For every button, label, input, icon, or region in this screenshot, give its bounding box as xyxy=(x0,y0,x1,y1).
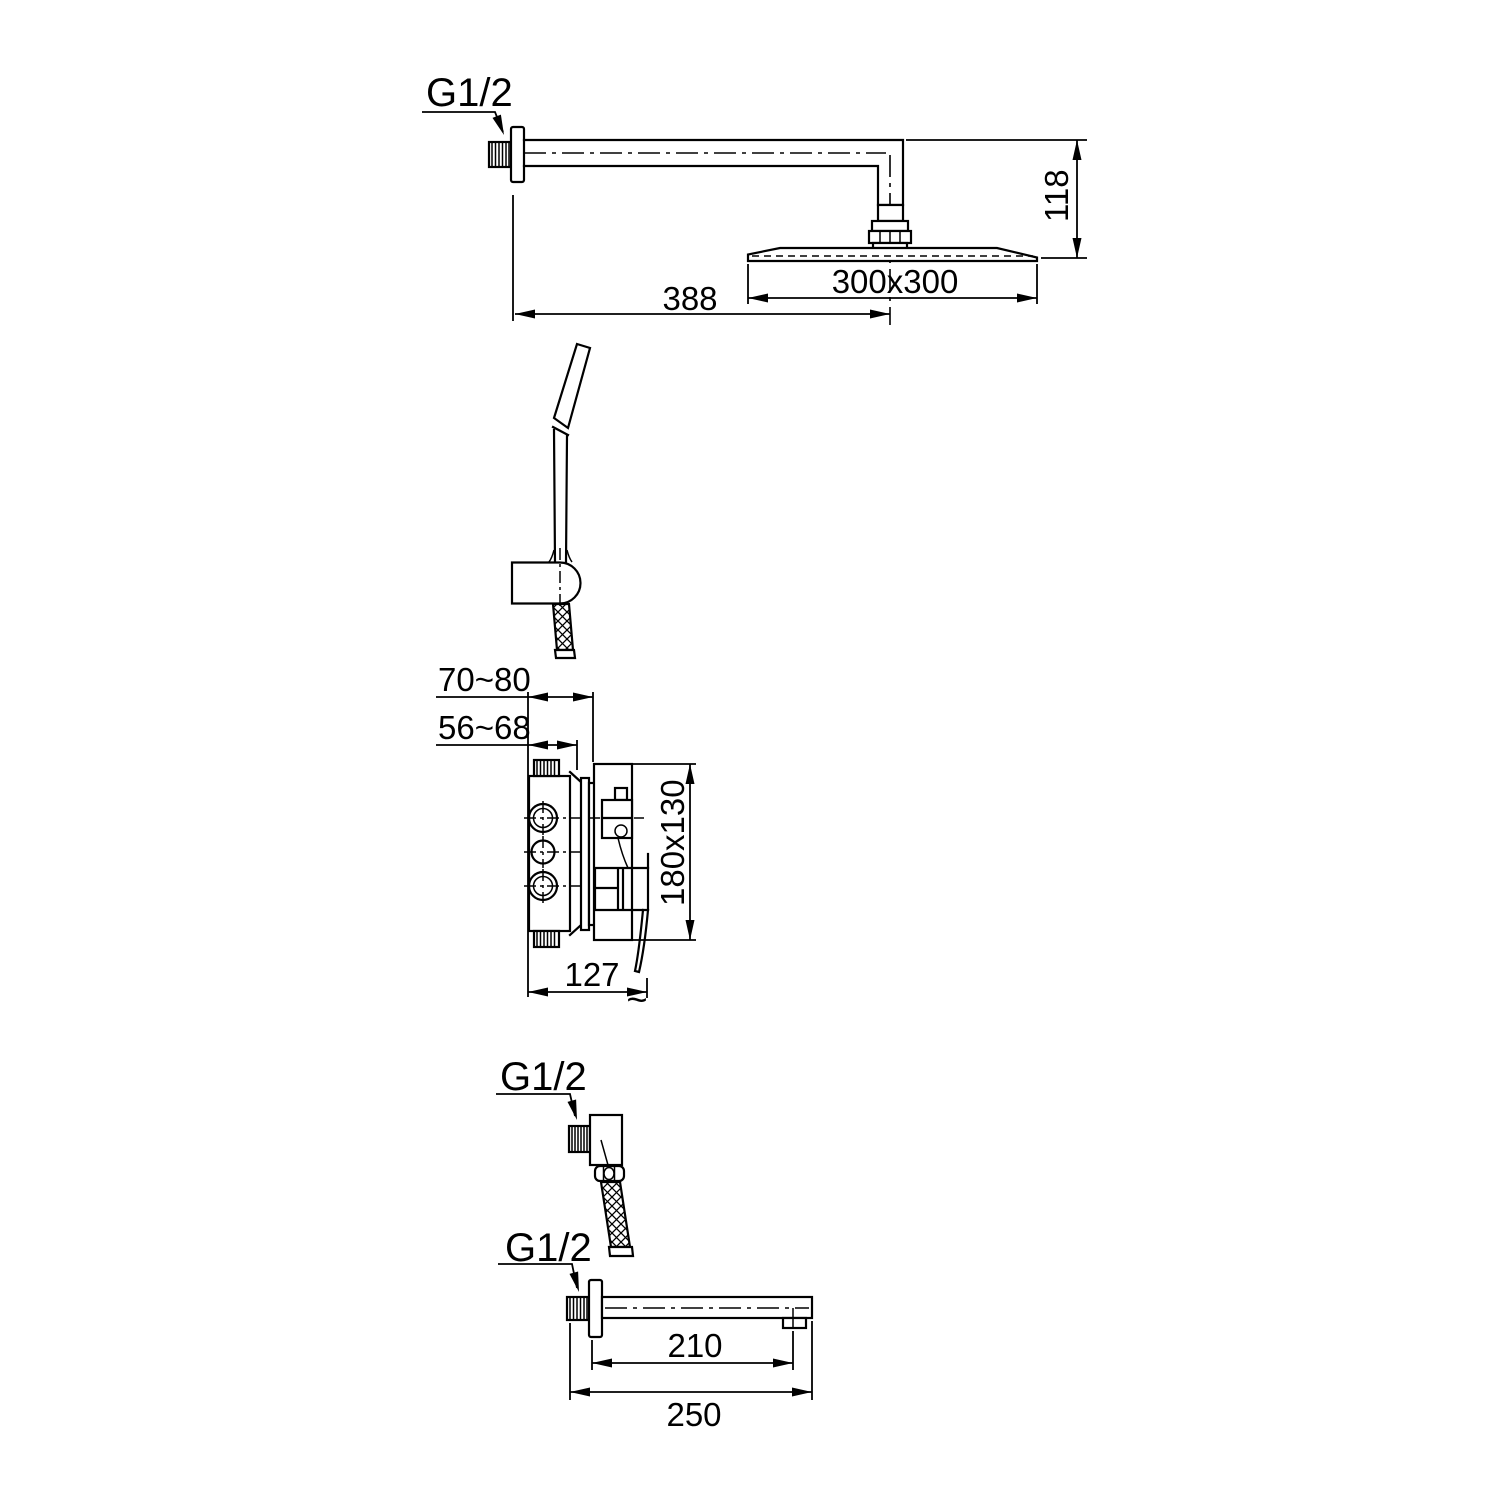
approx-tilde-symbol: ~ xyxy=(626,979,647,1020)
hand-shower-handle xyxy=(554,430,567,562)
arrow-right-icon xyxy=(773,1359,793,1368)
bath-spout-assembly: G1/2 210 250 xyxy=(498,1226,812,1433)
dim-label-118: 118 xyxy=(1038,169,1075,222)
shower-system-dimension-drawing: G1/2 118 300x300 xyxy=(0,0,1500,1500)
mixer-valve-assembly: 70~80 56~68 xyxy=(436,661,696,1020)
rain-shower-thread-label: G1/2 xyxy=(426,71,513,115)
leader-arrow-icon xyxy=(493,115,505,135)
arrow-left-icon xyxy=(528,988,548,997)
arrow-down-icon xyxy=(1073,238,1082,258)
dim-label-250: 250 xyxy=(666,1396,721,1433)
shower-arm xyxy=(524,140,903,205)
dim-label-210: 210 xyxy=(667,1327,722,1364)
arm-wall-flange xyxy=(511,127,524,182)
hand-shower-assembly xyxy=(512,344,590,658)
spout-outlet xyxy=(783,1318,806,1328)
arrow-left-icon xyxy=(528,693,548,702)
hand-shower-holder xyxy=(512,563,581,604)
ball-joint-neck xyxy=(878,205,903,221)
escutcheon-plate-side xyxy=(581,778,589,930)
arrow-left-icon xyxy=(515,310,535,319)
arrow-left-icon xyxy=(592,1359,612,1368)
elbow-hose-end xyxy=(609,1247,633,1256)
arrow-down-icon xyxy=(686,920,695,940)
dim-label-388: 388 xyxy=(662,280,717,317)
handle-lever-tail xyxy=(635,910,648,972)
dim-label-300x300: 300x300 xyxy=(832,263,959,300)
dim-label-70-80: 70~80 xyxy=(438,661,531,698)
diverter-button xyxy=(615,788,627,800)
technical-drawing-canvas: G1/2 118 300x300 xyxy=(0,0,1500,1500)
arrow-right-icon xyxy=(557,741,577,750)
elbow-thread-label: G1/2 xyxy=(500,1055,587,1099)
hand-shower-head xyxy=(554,344,590,428)
rain-shower-leader-line xyxy=(422,112,503,132)
hand-shower-hose xyxy=(553,604,573,650)
hose-end-fitting xyxy=(555,650,575,658)
dim-label-180x130: 180x130 xyxy=(654,779,691,906)
leader-arrow-icon xyxy=(568,1100,578,1121)
ball-joint-collar xyxy=(872,221,908,231)
elbow-hose xyxy=(601,1182,630,1247)
arrow-left-icon xyxy=(528,741,548,750)
arrow-right-icon xyxy=(1017,294,1037,303)
arrow-left-icon xyxy=(748,294,768,303)
rain-shower-assembly: G1/2 118 300x300 xyxy=(422,71,1087,325)
dim-label-127: 127 xyxy=(564,956,619,993)
arrow-right-icon xyxy=(792,1388,812,1397)
spout-wall-flange xyxy=(589,1280,602,1337)
arrow-left-icon xyxy=(570,1388,590,1397)
arrow-right-icon xyxy=(870,310,890,319)
arrow-right-icon xyxy=(573,693,593,702)
arrow-up-icon xyxy=(1073,140,1082,160)
hand-shower-seam xyxy=(553,427,568,435)
escutcheon-cone xyxy=(570,772,581,935)
leader-arrow-icon xyxy=(570,1272,580,1293)
shower-head-plate xyxy=(748,248,1037,261)
valve-body xyxy=(529,776,570,931)
dim-label-56-68: 56~68 xyxy=(438,709,531,746)
